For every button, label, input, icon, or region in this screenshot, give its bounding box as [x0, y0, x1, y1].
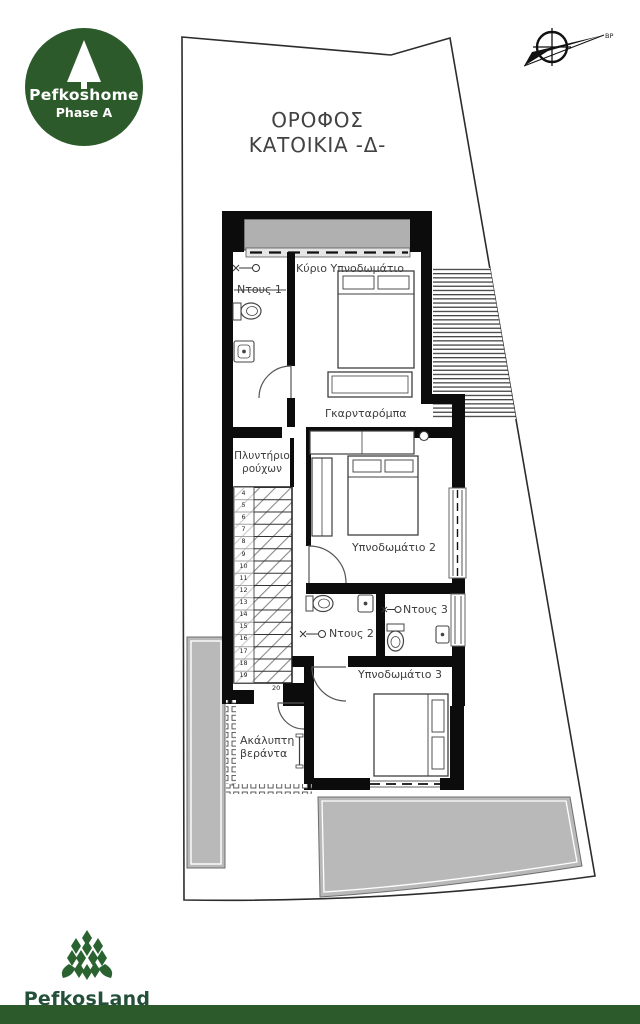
stair-step-number: 14	[235, 609, 252, 621]
pefkosland-logo: PefkosLand	[22, 930, 152, 1010]
sink-shower3	[436, 626, 449, 643]
stair-step-number: 10	[235, 561, 252, 573]
logo-top-phase: Phase A	[25, 105, 143, 120]
pinecone-icon	[57, 930, 117, 982]
patio-left	[187, 637, 225, 868]
room-label-bedroom3: Υπνοδωμάτιο 3	[358, 668, 442, 681]
laundry-line2: ρούχων	[234, 463, 290, 476]
room-label-shower2: Ντους 2	[329, 627, 374, 640]
stair-landing-number: 20	[272, 684, 280, 692]
stair-step-number: 15	[235, 621, 252, 633]
floor-plan-page: 20	[0, 0, 640, 1024]
balcony-strip	[244, 219, 412, 257]
master-bed	[338, 271, 414, 368]
stair-step-number: 19	[235, 670, 252, 682]
compass-icon: ΒΡ	[524, 28, 613, 66]
stair-step-number: 17	[235, 646, 252, 658]
stair-step-number: 9	[235, 549, 252, 561]
bedroom3-window	[370, 779, 440, 789]
room-label-laundry: Πλυντήριο ρούχων	[234, 450, 290, 476]
compass-label: ΒΡ	[605, 32, 613, 40]
room-label-shower3: Ντους 3	[403, 603, 448, 616]
bedroom2-bed	[348, 456, 418, 535]
pefkoshome-logo: Pefkoshome Phase A	[25, 28, 143, 146]
stair-step-number: 8	[235, 537, 252, 549]
stair-step-number: 18	[235, 658, 252, 670]
toilet-shower3	[387, 624, 404, 651]
veranda-line2: βεράντα	[240, 747, 294, 760]
footer-green-bar	[0, 1005, 640, 1024]
laundry-line1: Πλυντήριο	[234, 450, 290, 463]
stair-step-number: 12	[235, 585, 252, 597]
stair-step-number: 6	[235, 512, 252, 524]
bedroom2-wardrobe-left	[312, 458, 332, 536]
plan-title-line1: ΟΡΟΦΟΣ	[185, 108, 450, 133]
stair-numbers: 45678910111213141516171819	[235, 488, 252, 682]
stair-step-number: 5	[235, 500, 252, 512]
stair-step-number: 4	[235, 488, 252, 500]
logo-top-name: Pefkoshome	[25, 86, 143, 104]
pine-tree-icon	[56, 38, 112, 90]
room-label-wardrobe: Γκαρνταρόμπα	[325, 407, 406, 420]
stair-step-number: 13	[235, 597, 252, 609]
bedroom3-bed	[374, 694, 448, 776]
bedroom2-window	[449, 488, 466, 578]
room-label-shower1: Ντους 1	[237, 283, 282, 296]
veranda-line1: Ακάλυπτη	[240, 734, 294, 747]
room-label-bedroom2: Υπνοδωμάτιο 2	[352, 541, 436, 554]
bedroom2-wardrobe-top	[310, 431, 429, 454]
stair-step-number: 16	[235, 634, 252, 646]
plan-title-line2: ΚΑΤΟΙΚΙΑ -Δ-	[185, 133, 450, 158]
stair-step-number: 7	[235, 524, 252, 536]
sink-shower2	[358, 595, 373, 612]
plan-title: ΟΡΟΦΟΣ ΚΑΤΟΙΚΙΑ -Δ-	[185, 108, 450, 158]
toilet-shower2	[306, 596, 333, 612]
stair-step-number: 11	[235, 573, 252, 585]
sink-shower1	[234, 341, 254, 362]
toilet-shower1	[233, 303, 261, 320]
room-label-veranda: Ακάλυπτη βεράντα	[240, 734, 294, 760]
wardrobe-closet	[328, 372, 412, 397]
shower3-window	[451, 594, 465, 646]
room-label-master-bedroom: Κύριο Υπνοδωμάτιο	[296, 262, 404, 275]
